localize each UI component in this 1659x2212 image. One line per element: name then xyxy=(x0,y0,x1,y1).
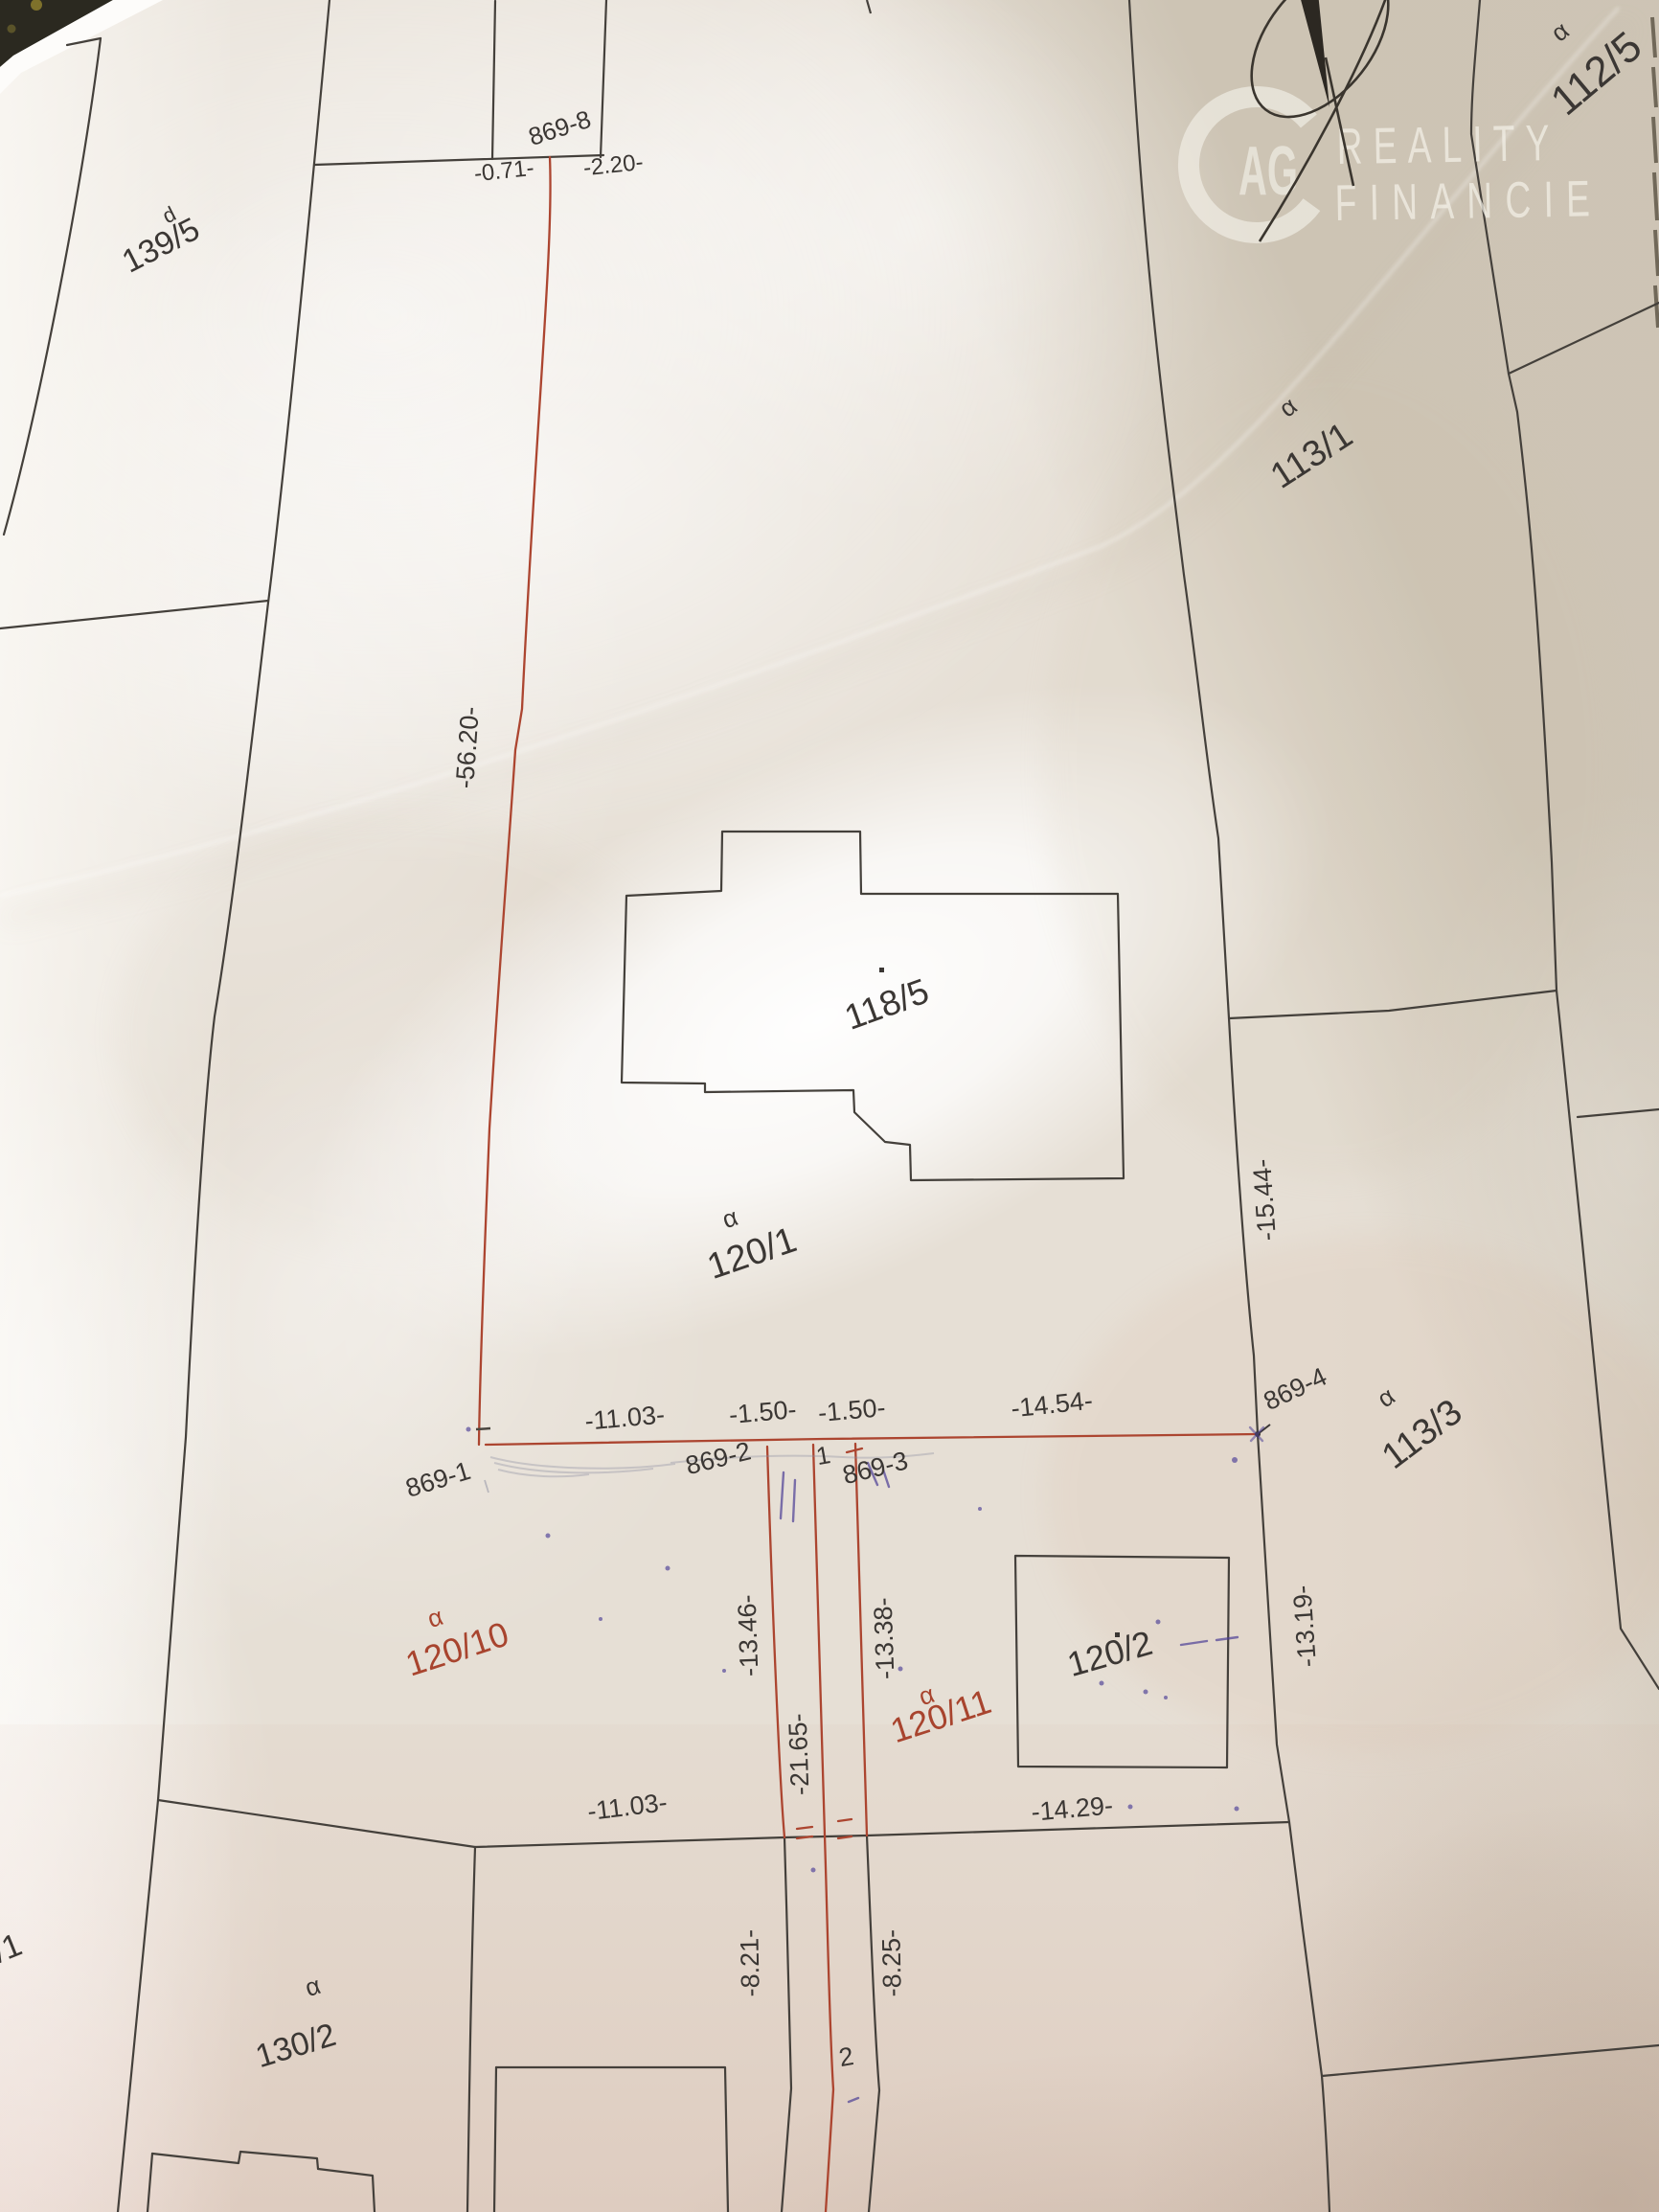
svg-text:-15.44-: -15.44- xyxy=(1247,1158,1282,1242)
svg-text:-56.20-: -56.20- xyxy=(450,706,485,789)
svg-text:-8.25-: -8.25- xyxy=(876,1929,906,1997)
svg-text:-21.65-: -21.65- xyxy=(784,1713,815,1796)
svg-text:-1.50-: -1.50- xyxy=(728,1395,798,1429)
svg-text:AG: AG xyxy=(1239,133,1298,210)
svg-text:-1.50-: -1.50- xyxy=(817,1393,887,1427)
svg-text:-13.46-: -13.46- xyxy=(733,1594,764,1677)
svg-text:-13.19-: -13.19- xyxy=(1287,1585,1322,1668)
svg-text:-13.38-: -13.38- xyxy=(869,1597,900,1680)
svg-text:FINANCIE: FINANCIE xyxy=(1334,171,1602,232)
svg-text:-8.21-: -8.21- xyxy=(735,1929,764,1997)
svg-text:REALITY: REALITY xyxy=(1336,114,1560,174)
